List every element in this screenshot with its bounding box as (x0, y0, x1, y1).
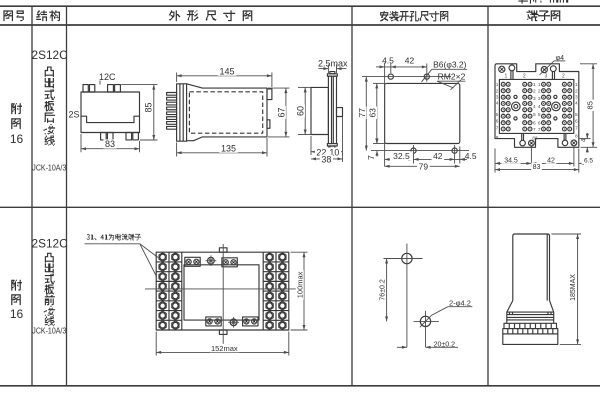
svg-text:3: 3 (545, 74, 548, 80)
svg-text:3: 3 (575, 95, 578, 101)
svg-text:7: 7 (366, 155, 376, 160)
svg-text:2: 2 (523, 74, 526, 80)
svg-text:2: 2 (496, 89, 499, 95)
svg-text:5: 5 (533, 112, 536, 118)
svg-text:4: 4 (575, 101, 578, 107)
svg-text:16: 16 (10, 307, 24, 321)
svg-text:RM2×2: RM2×2 (438, 71, 466, 81)
svg-text:8: 8 (575, 134, 578, 140)
svg-text:1: 1 (575, 82, 578, 88)
svg-text:32.5: 32.5 (393, 151, 410, 161)
svg-text:JCK-10A/3: JCK-10A/3 (32, 163, 66, 172)
svg-text:42: 42 (547, 157, 555, 164)
svg-text:42: 42 (405, 55, 415, 65)
svg-text:2S12C: 2S12C (32, 236, 69, 250)
svg-text:77: 77 (357, 108, 367, 118)
svg-text:1: 1 (533, 82, 536, 88)
svg-text:1: 1 (538, 82, 541, 88)
svg-text:2S: 2S (68, 109, 79, 119)
svg-text:79: 79 (419, 161, 429, 171)
svg-text:1: 1 (505, 74, 508, 80)
svg-text:4: 4 (496, 101, 499, 107)
svg-text:185MAX: 185MAX (570, 274, 577, 301)
svg-text:2: 2 (533, 89, 536, 95)
svg-text:6: 6 (533, 120, 536, 126)
svg-text:83: 83 (533, 164, 541, 171)
svg-text:12C: 12C (99, 72, 116, 82)
svg-text:67: 67 (276, 107, 286, 117)
svg-text:4: 4 (538, 104, 541, 110)
svg-text:7: 7 (538, 127, 541, 133)
svg-text:85: 85 (586, 101, 595, 109)
svg-text:63: 63 (368, 108, 378, 118)
svg-text:3: 3 (533, 96, 536, 102)
svg-text:2S12C: 2S12C (32, 48, 69, 62)
svg-text:76±0.2: 76±0.2 (379, 279, 386, 300)
svg-text:4.5: 4.5 (382, 55, 394, 65)
svg-text:152max: 152max (211, 344, 238, 353)
svg-text:2: 2 (575, 89, 578, 95)
svg-text:B6(φ3.2): B6(φ3.2) (433, 60, 467, 70)
svg-text:85: 85 (143, 102, 153, 112)
svg-text:3: 3 (538, 96, 541, 102)
svg-text:2.5max: 2.5max (318, 58, 348, 68)
svg-text:38: 38 (321, 154, 331, 164)
svg-text:6: 6 (538, 120, 541, 126)
svg-text:5: 5 (538, 112, 541, 118)
svg-text:83: 83 (105, 139, 115, 149)
svg-text:42: 42 (433, 151, 443, 161)
svg-text:4.5: 4.5 (465, 151, 477, 161)
svg-text:7: 7 (575, 125, 578, 131)
svg-text:7: 7 (496, 125, 499, 131)
svg-text:16: 16 (10, 132, 24, 146)
svg-text:34.5: 34.5 (504, 157, 518, 164)
svg-text:JCK-10A/3: JCK-10A/3 (32, 326, 66, 335)
svg-text:2: 2 (562, 74, 565, 80)
svg-text:6: 6 (575, 119, 578, 125)
svg-text:2-φ4.2: 2-φ4.2 (449, 299, 471, 308)
svg-text:20±0.2: 20±0.2 (434, 341, 455, 348)
svg-text:5: 5 (496, 112, 499, 118)
svg-text:5: 5 (575, 112, 578, 118)
svg-text:4: 4 (533, 104, 536, 110)
svg-text:145: 145 (219, 66, 234, 76)
svg-text:8: 8 (496, 135, 499, 141)
svg-text:6: 6 (496, 119, 499, 125)
svg-text:2: 2 (538, 89, 541, 95)
svg-text:135: 135 (221, 143, 236, 153)
svg-text:3: 3 (496, 95, 499, 101)
svg-text:60: 60 (295, 106, 305, 116)
svg-text:1: 1 (496, 82, 499, 88)
svg-text:100max: 100max (295, 271, 304, 298)
svg-text:7: 7 (533, 127, 536, 133)
svg-text:6.5: 6.5 (584, 158, 593, 165)
